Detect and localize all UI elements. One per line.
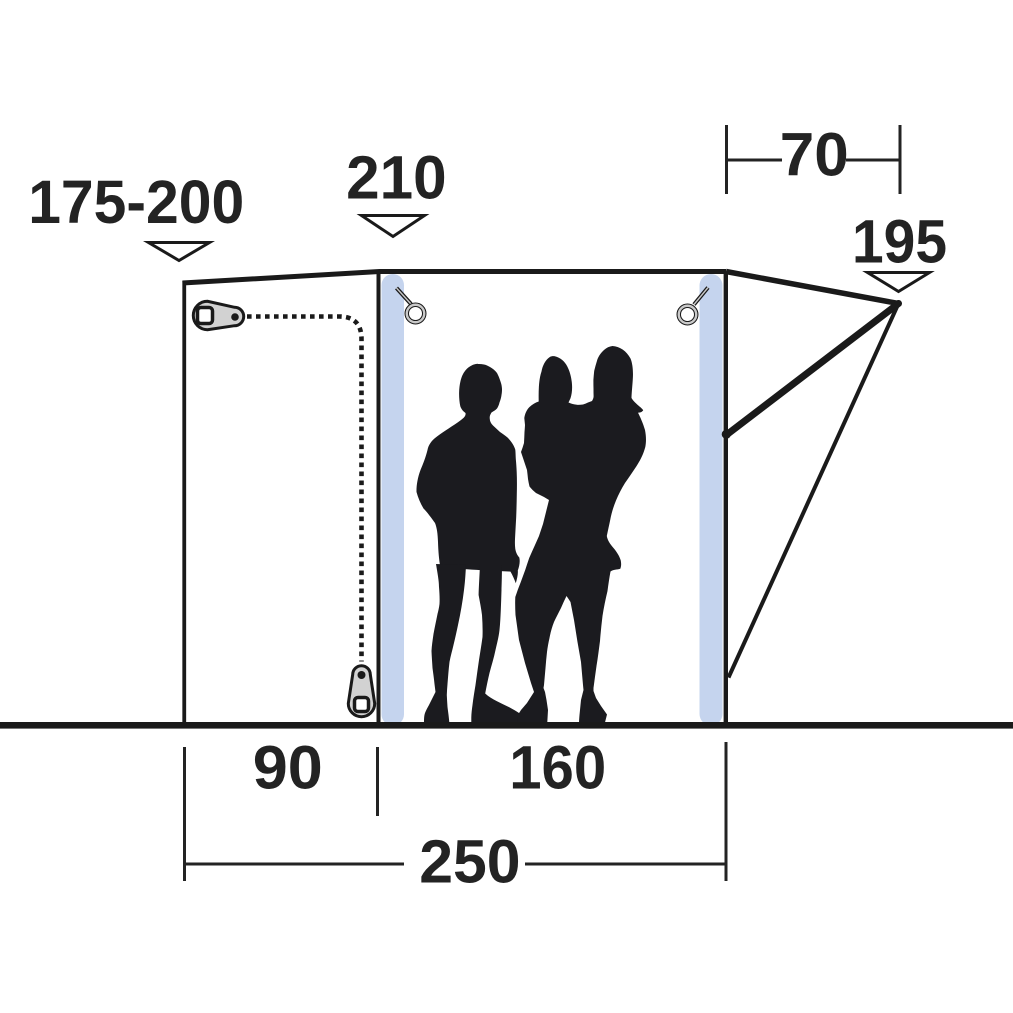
svg-text:160: 160 — [509, 733, 606, 801]
svg-text:250: 250 — [419, 827, 520, 895]
svg-text:70: 70 — [780, 121, 849, 189]
svg-text:210: 210 — [346, 143, 447, 211]
svg-text:175-200: 175-200 — [28, 168, 244, 236]
svg-text:195: 195 — [852, 208, 947, 276]
svg-text:90: 90 — [253, 733, 323, 801]
